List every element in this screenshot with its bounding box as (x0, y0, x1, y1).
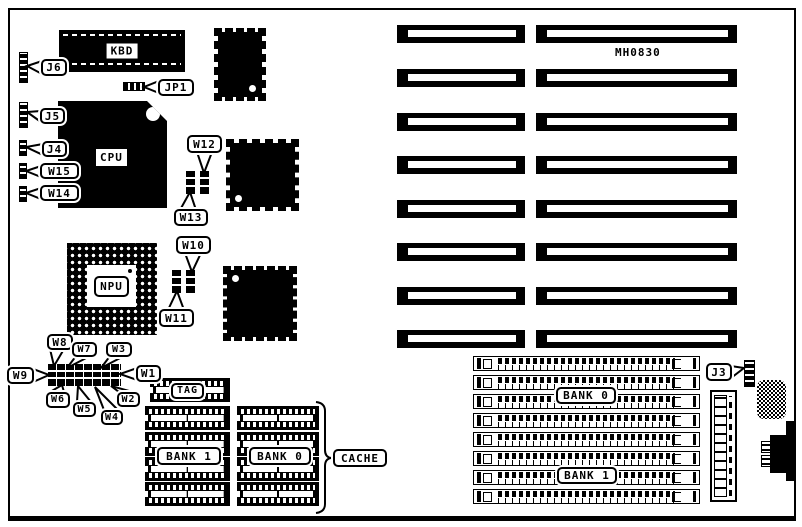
label-text: W11 (165, 313, 188, 324)
label-text: BANK 1 (166, 451, 212, 462)
w13-jumper (186, 171, 195, 194)
expansion-slot-segment (536, 200, 737, 218)
kbd-label-text: KBD (111, 46, 134, 57)
simm-socket (473, 413, 700, 428)
label-text: J6 (46, 62, 61, 73)
power-connector-pins (714, 395, 727, 497)
label-text: J3 (711, 367, 726, 378)
label-w9: W9 (7, 367, 34, 384)
label-w11: W11 (159, 309, 194, 327)
label-cache-bank0: BANK 0 (249, 447, 311, 465)
label-text: W1 (141, 368, 156, 379)
din-plug (761, 455, 771, 467)
label-text: W7 (77, 345, 91, 355)
label-cache: CACHE (333, 449, 387, 467)
simm-socket (473, 451, 700, 466)
expansion-slot-segment (397, 243, 525, 261)
label-w1: W1 (136, 365, 161, 382)
ic-chip-lower (223, 266, 297, 341)
pin1-dot (249, 85, 256, 92)
label-text: JP1 (165, 82, 188, 93)
expansion-slot-segment (397, 25, 525, 43)
npu-socket: NPU (67, 243, 157, 335)
ic-chip-middle (226, 139, 299, 211)
expansion-slot-segment (536, 156, 737, 174)
cpu-label: CPU (94, 147, 129, 168)
label-w12: W12 (187, 135, 222, 153)
power-connector (710, 390, 737, 502)
label-text: BANK 0 (563, 390, 609, 401)
w14-jumper (19, 186, 27, 202)
label-w3: W3 (106, 342, 132, 357)
npu-socket-center: NPU (87, 265, 136, 307)
j5-header (19, 102, 28, 128)
label-text: W12 (193, 139, 216, 150)
label-w6: W6 (46, 392, 70, 408)
expansion-slot-segment (536, 287, 737, 305)
cache-chip (145, 482, 230, 506)
label-text: TAG (177, 386, 198, 396)
expansion-slot-segment (397, 287, 525, 305)
label-text: W15 (48, 166, 71, 177)
label-j5: J5 (40, 108, 65, 124)
din-connector-body (786, 421, 796, 481)
label-text: J5 (45, 111, 60, 122)
label-simm-bank0: BANK 0 (556, 387, 616, 404)
j3-header (744, 360, 755, 387)
j4-header (19, 140, 27, 156)
simm-socket (473, 356, 700, 371)
label-text: BANK 1 (564, 470, 610, 481)
label-text: W6 (51, 395, 65, 405)
kbd-label: KBD (105, 42, 140, 61)
cache-chip (237, 406, 319, 430)
expansion-slot-segment (397, 200, 525, 218)
label-w15: W15 (40, 163, 79, 179)
expansion-slot-segment (397, 113, 525, 131)
label-w10: W10 (176, 236, 211, 254)
label-text: W5 (77, 405, 91, 415)
label-w13: W13 (174, 209, 208, 226)
label-j3: J3 (706, 363, 732, 381)
simm-socket (473, 432, 700, 447)
label-j4: J4 (42, 141, 67, 157)
label-text: BANK 0 (257, 451, 303, 462)
jumper-block-w1-w9 (48, 364, 121, 386)
label-text: W4 (105, 413, 119, 423)
label-w7: W7 (72, 342, 97, 357)
label-cache-bank1: BANK 1 (157, 447, 221, 465)
motherboard-diagram: KBD CPU NPU (0, 0, 802, 527)
pin1-dot (235, 195, 242, 202)
ic-chip-top (214, 28, 266, 101)
label-w8: W8 (47, 334, 73, 350)
power-connector-key (729, 396, 732, 496)
label-text: W2 (121, 395, 135, 405)
cache-chip (145, 406, 230, 430)
expansion-slot-segment (536, 69, 737, 87)
label-jp1: JP1 (158, 79, 194, 96)
simm-socket (473, 489, 700, 504)
npu-label: NPU (94, 276, 129, 297)
label-text: W10 (182, 240, 205, 251)
label-simm-bank1: BANK 1 (557, 467, 617, 484)
cpu-label-text: CPU (100, 152, 123, 163)
label-text: W13 (180, 212, 203, 223)
label-text: W14 (48, 188, 71, 199)
npu-label-text: NPU (100, 281, 123, 292)
kbd-chip: KBD (59, 30, 185, 72)
part-number: MH0830 (615, 47, 661, 58)
pin1-dot (232, 275, 239, 282)
label-tag: TAG (171, 383, 204, 399)
expansion-slot-segment (397, 330, 525, 348)
label-text: W9 (13, 370, 28, 381)
expansion-slot-segment (536, 243, 737, 261)
label-text: J4 (47, 144, 62, 155)
j6-header (19, 52, 28, 83)
npu-pin1-dot (128, 269, 132, 273)
w12-jumper (200, 171, 209, 194)
din-plug (761, 441, 771, 453)
cache-chip (237, 482, 319, 506)
w15-jumper (19, 163, 27, 179)
expansion-slot-segment (536, 330, 737, 348)
expansion-slot-segment (536, 113, 737, 131)
label-j6: J6 (41, 59, 67, 76)
ferrite-component (756, 379, 787, 420)
label-w14: W14 (40, 185, 79, 201)
expansion-slot-segment (397, 69, 525, 87)
jp1-header (123, 82, 145, 91)
label-text: CACHE (341, 453, 379, 464)
label-text: W3 (112, 345, 126, 355)
w10-jumper (186, 270, 195, 293)
expansion-slot-segment (536, 25, 737, 43)
expansion-slot-segment (397, 156, 525, 174)
w11-jumper (172, 270, 181, 293)
label-text: W8 (52, 337, 67, 348)
label-w2: W2 (117, 392, 140, 407)
label-w5: W5 (73, 402, 96, 417)
label-w4: W4 (101, 410, 123, 425)
